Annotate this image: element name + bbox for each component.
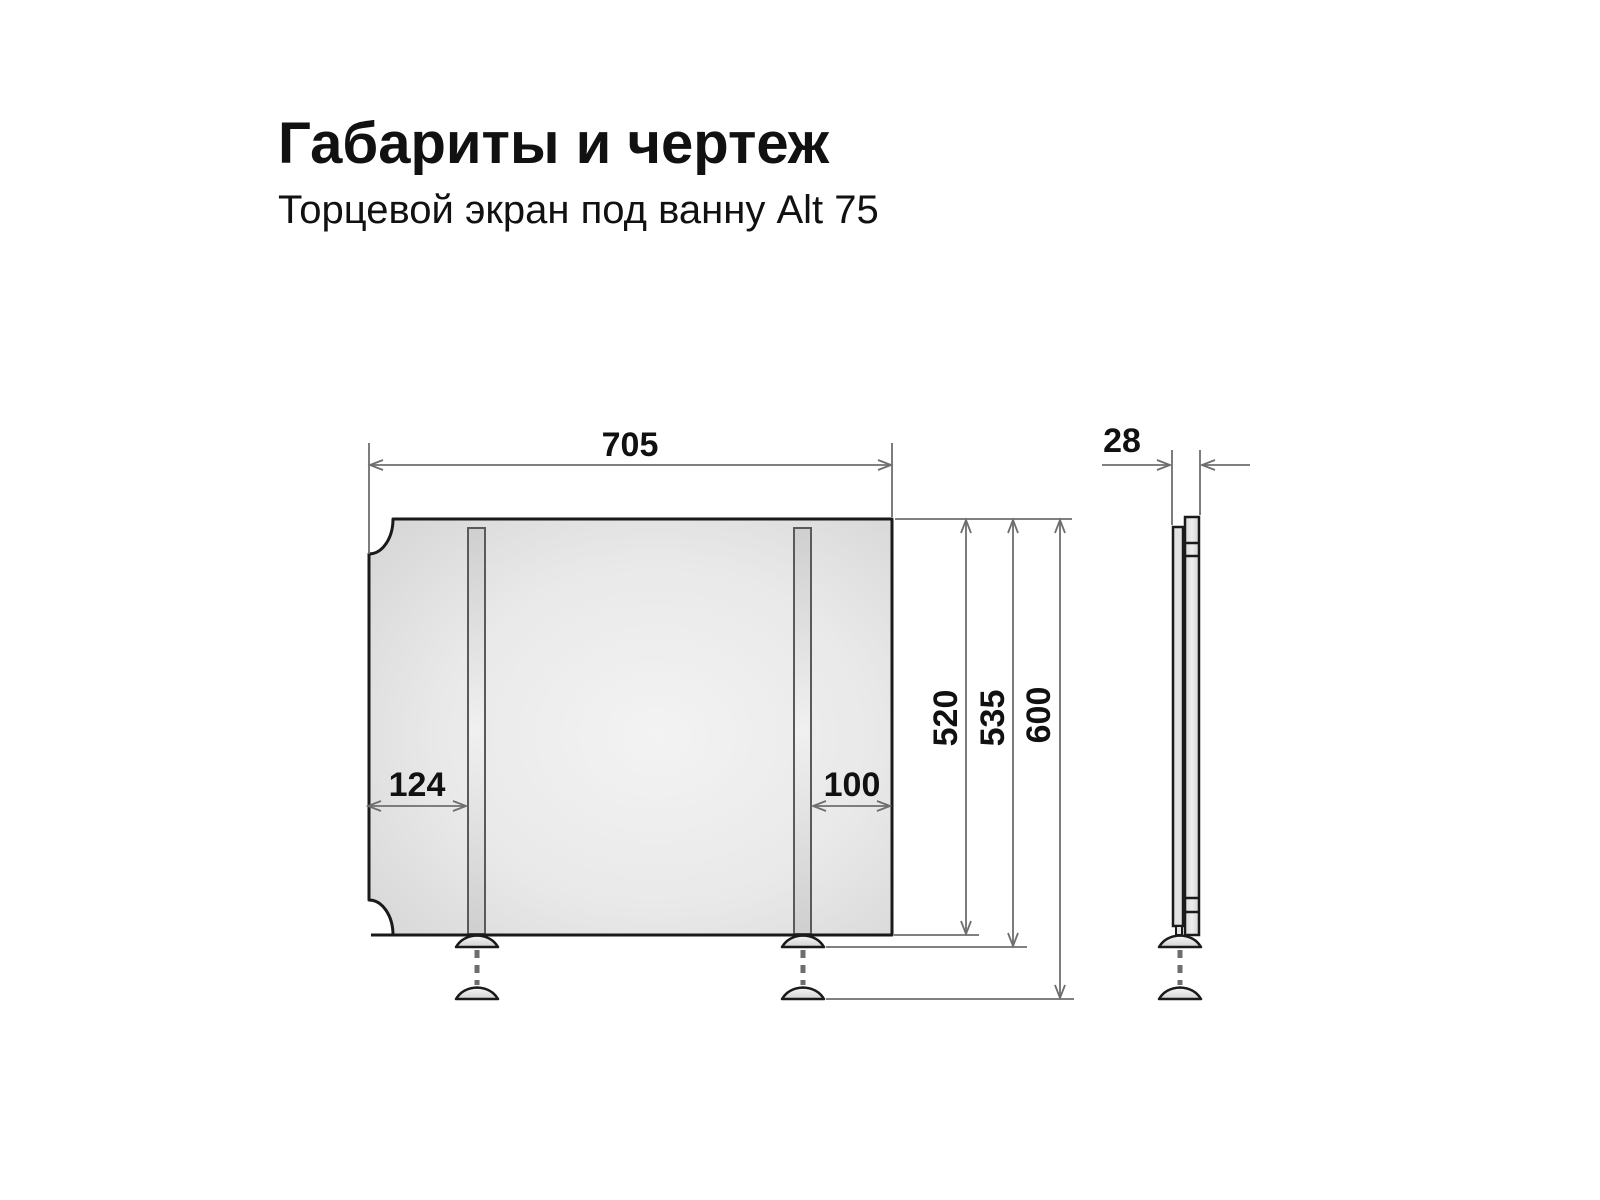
dim-label-right-offset: 100 — [824, 766, 881, 804]
dim-label-thickness: 28 — [1103, 422, 1141, 460]
panel-side-profile — [1173, 527, 1183, 926]
dim-label-left-offset: 124 — [389, 766, 446, 804]
front-view — [369, 519, 892, 999]
left-foot — [456, 936, 498, 948]
panel-front — [369, 519, 892, 935]
technical-drawing: 705 124 100 520 535 600 28 — [0, 0, 1600, 1200]
right-foot — [782, 936, 824, 948]
foot-side-extended — [1159, 988, 1201, 1000]
dim-label-height-with-feet: 535 — [974, 690, 1012, 747]
right-foot-extended — [782, 988, 824, 1000]
side-view — [1159, 517, 1201, 999]
foot-stem-side — [1176, 926, 1182, 935]
left-leg-rail — [468, 528, 485, 934]
leg-side-profile — [1185, 517, 1199, 935]
dim-label-width: 705 — [602, 426, 659, 464]
left-foot-extended — [456, 988, 498, 1000]
dimension-600 — [1055, 520, 1065, 998]
right-leg-rail — [794, 528, 811, 934]
page: Габариты и чертеж Торцевой экран под ван… — [0, 0, 1600, 1200]
dim-label-max-height: 600 — [1020, 687, 1058, 744]
foot-side — [1159, 936, 1201, 948]
dim-label-panel-height: 520 — [927, 690, 965, 747]
dimension-28 — [1102, 450, 1250, 525]
